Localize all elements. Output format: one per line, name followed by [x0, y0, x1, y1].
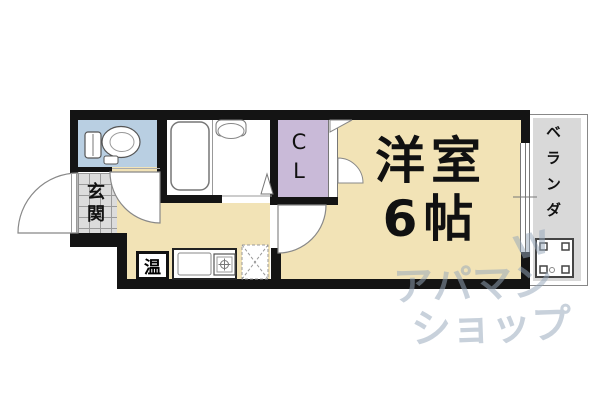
entrance-door-arc [18, 173, 78, 233]
room-door-arc [278, 205, 326, 253]
closet-label-l: L [280, 157, 318, 186]
stove-icon [214, 254, 235, 275]
main-room-label: 洋室 6帖 [336, 132, 526, 248]
refrigerator-space [242, 245, 268, 279]
water-heater-label: 温 [144, 253, 161, 278]
entrance-label: 関 [85, 206, 107, 224]
toilet-door-arc [110, 169, 160, 224]
main-room-name: 洋室 [336, 132, 526, 190]
closet-label-c: C [280, 128, 318, 157]
kitchen-counter [173, 249, 236, 279]
sink-icon [216, 120, 246, 139]
bathroom-door-marker [222, 174, 273, 196]
entrance-label: 玄 [85, 184, 107, 202]
toilet-icon [85, 127, 140, 165]
bathtub-icon [171, 122, 209, 190]
water-heater-box: 温 [136, 251, 169, 280]
main-room-size: 6帖 [336, 190, 526, 248]
floorplan: 洋室 6帖 C L 玄 関 ベランダ 温 アパマン ショップ W [0, 0, 600, 400]
veranda-label: ベランダ [545, 124, 560, 228]
closet-label: C L [280, 128, 318, 186]
kitchen-sink [178, 253, 211, 275]
watermark-line2: ショップ [410, 291, 572, 355]
